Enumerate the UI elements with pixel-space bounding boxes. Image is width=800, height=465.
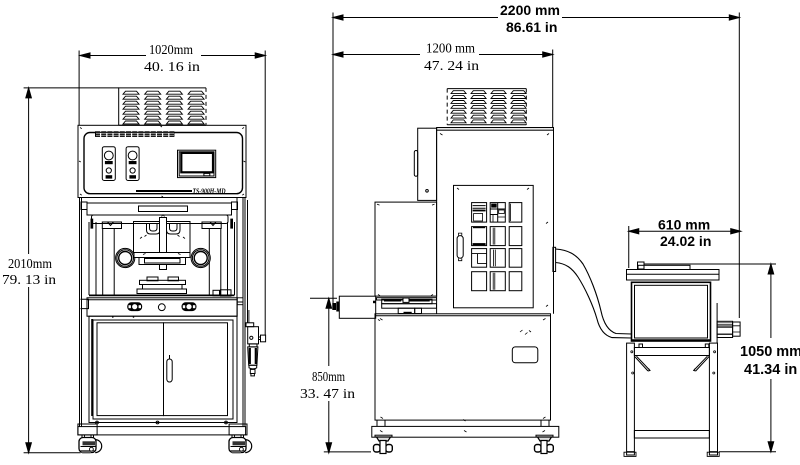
svg-text:2200 mm: 2200 mm: [500, 2, 560, 18]
svg-text:33. 47 in: 33. 47 in: [300, 387, 355, 402]
svg-text:40. 16 in: 40. 16 in: [144, 60, 200, 75]
svg-text:1020mm: 1020mm: [149, 43, 193, 58]
svg-text:2010mm: 2010mm: [8, 257, 52, 272]
svg-text:1200 mm: 1200 mm: [426, 42, 475, 57]
svg-text:850mm: 850mm: [312, 370, 345, 385]
svg-text:41.34 in: 41.34 in: [744, 362, 797, 378]
svg-text:610 mm: 610 mm: [658, 217, 710, 233]
svg-text:1050 mm: 1050 mm: [740, 344, 800, 360]
svg-text:47. 24 in: 47. 24 in: [424, 59, 479, 74]
svg-text:86.61 in: 86.61 in: [506, 19, 557, 35]
svg-text:79. 13 in: 79. 13 in: [2, 273, 56, 288]
svg-text:24.02 in: 24.02 in: [660, 233, 711, 249]
svg-text:TS-900H-MD: TS-900H-MD: [193, 188, 227, 196]
